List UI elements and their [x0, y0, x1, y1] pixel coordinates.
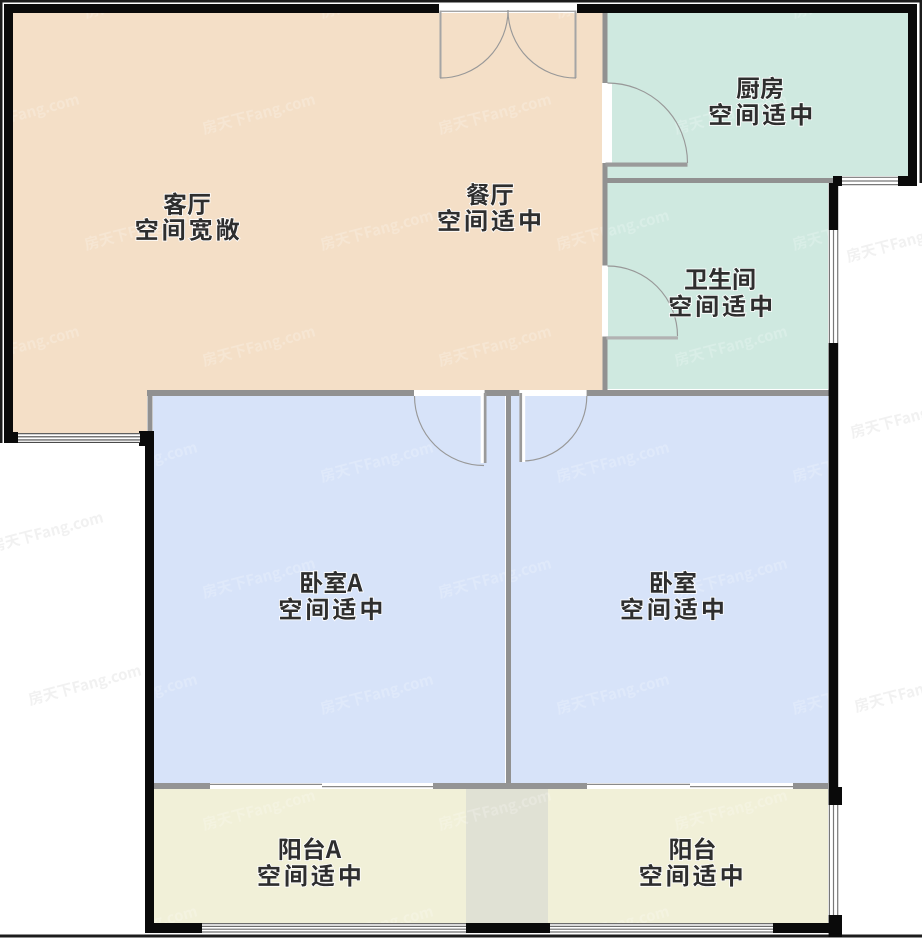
svg-text:空间适中: 空间适中: [668, 287, 776, 322]
svg-text:空间适中: 空间适中: [620, 590, 728, 625]
svg-text:空间适中: 空间适中: [708, 96, 816, 131]
svg-text:空间适中: 空间适中: [278, 590, 386, 625]
svg-text:空间宽敞: 空间宽敞: [135, 210, 243, 245]
svg-text:空间适中: 空间适中: [257, 856, 365, 891]
svg-text:空间适中: 空间适中: [639, 856, 747, 891]
svg-text:空间适中: 空间适中: [437, 202, 545, 237]
